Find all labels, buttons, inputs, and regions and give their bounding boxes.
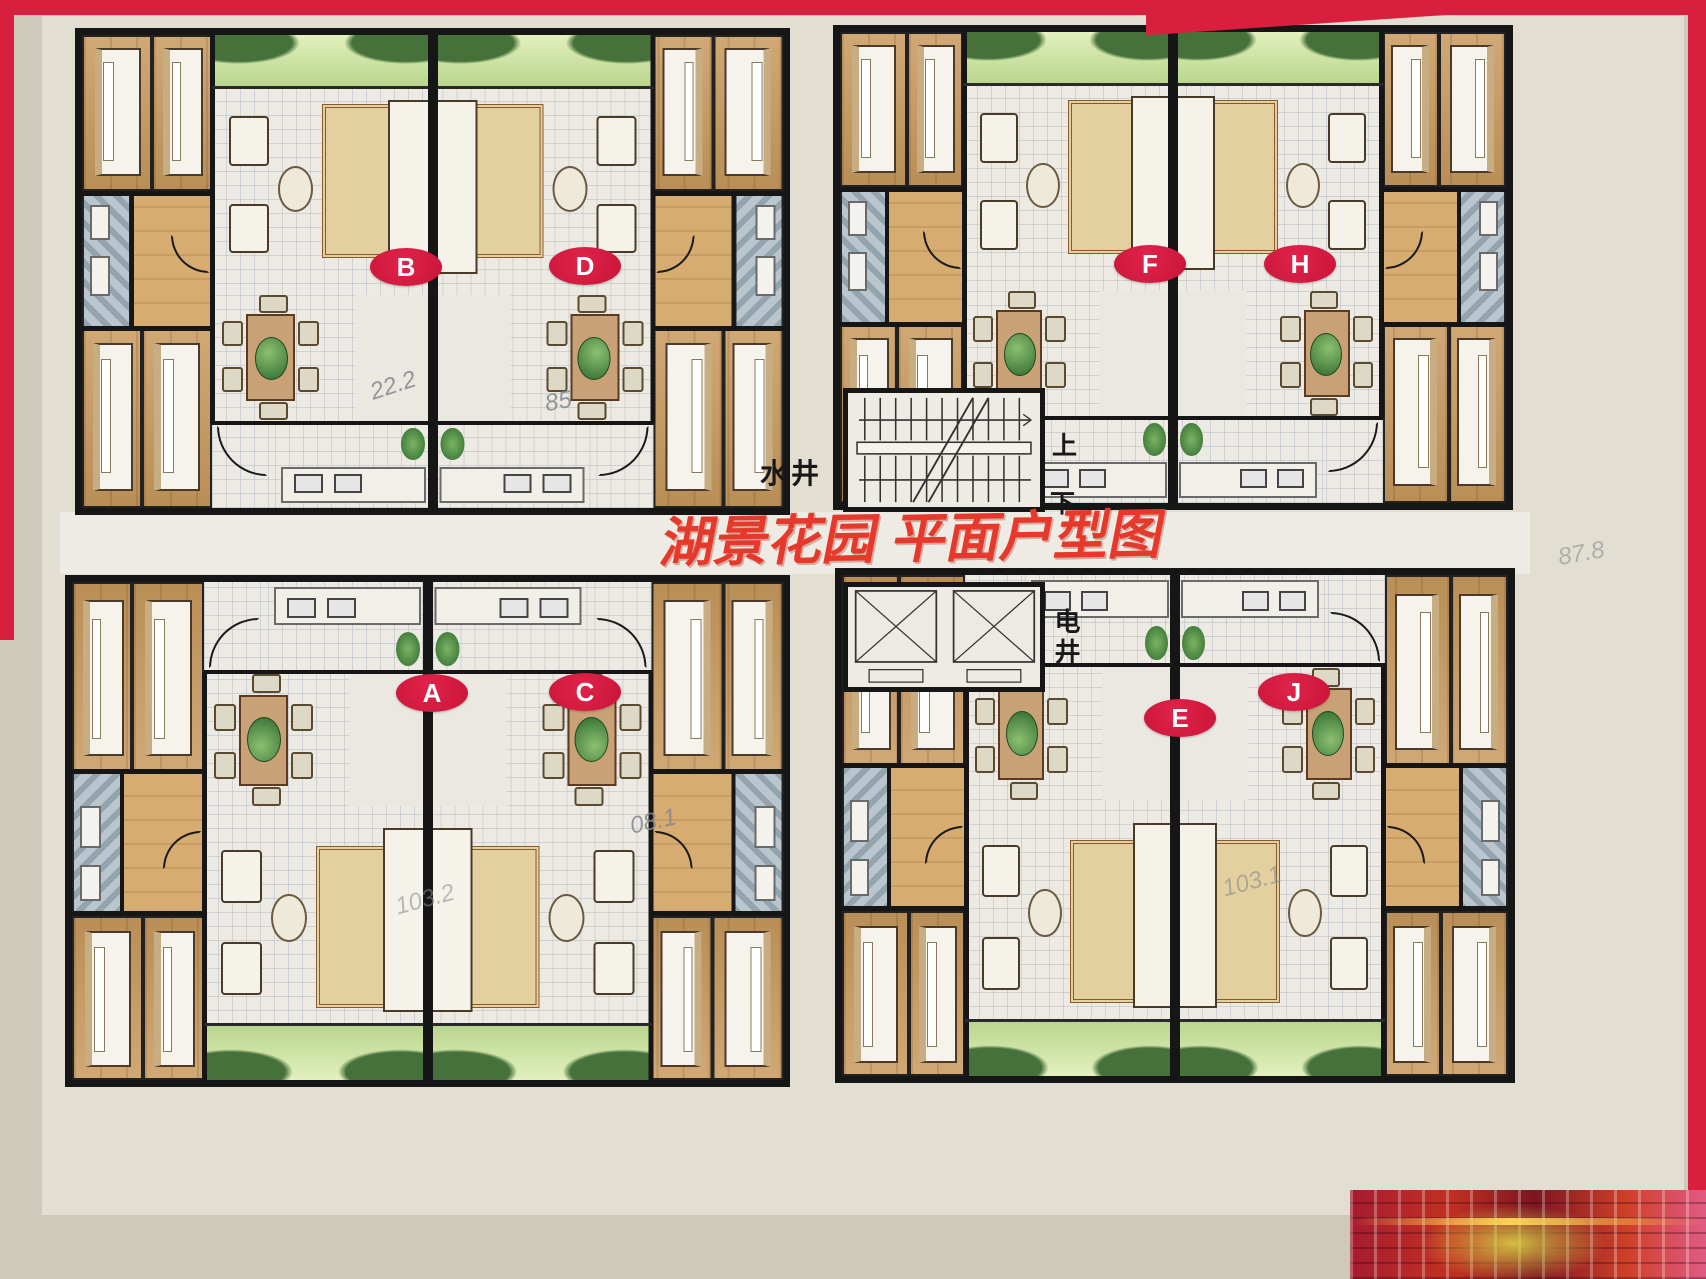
interior-wall xyxy=(428,670,652,674)
kitchen xyxy=(1023,418,1173,503)
interior-wall xyxy=(1175,663,1385,667)
chair-icon xyxy=(1353,362,1373,387)
bed-icon xyxy=(154,343,200,491)
armchair-icon xyxy=(229,116,269,166)
armchair-icon xyxy=(596,204,636,254)
hallway xyxy=(1383,187,1460,324)
armchair-icon xyxy=(1330,845,1368,898)
interior-wall xyxy=(212,421,433,425)
entry xyxy=(204,582,268,672)
sink-icon xyxy=(499,598,528,618)
armchair-icon xyxy=(982,845,1020,898)
interior-wall xyxy=(1379,32,1384,418)
bed-icon xyxy=(1391,45,1429,173)
bed-icon xyxy=(163,48,203,177)
unit-badge-f: F xyxy=(1114,245,1186,283)
light-streak xyxy=(1350,1218,1706,1225)
bath-fixture-icon xyxy=(90,205,110,240)
chair-icon xyxy=(298,321,320,347)
bathroom xyxy=(1461,765,1508,910)
bedroom xyxy=(1383,324,1450,503)
armchair-icon xyxy=(980,200,1018,250)
bed-icon xyxy=(724,48,770,177)
sofa-icon xyxy=(1133,823,1175,1008)
interior-wall xyxy=(653,326,783,331)
door-arc-icon xyxy=(1387,826,1425,864)
sofa-icon xyxy=(383,828,428,1012)
unit-a-floorplan xyxy=(72,582,428,1080)
sofa-icon xyxy=(428,828,473,1012)
balcony-rail xyxy=(212,86,433,89)
plant-icon xyxy=(1183,626,1205,660)
chair-icon xyxy=(1045,362,1065,387)
unit-badge-a: A xyxy=(396,674,468,712)
chair-icon xyxy=(577,402,606,420)
interior-wall xyxy=(648,672,653,1080)
stairs-up-label: 上 xyxy=(1052,426,1077,462)
bedroom xyxy=(1441,911,1508,1076)
interior-wall xyxy=(840,187,963,192)
bedroom xyxy=(713,35,783,191)
plant-icon xyxy=(1145,626,1167,660)
bed-icon xyxy=(917,45,955,173)
plant-icon xyxy=(1143,423,1165,455)
water-shaft-label: 水井 xyxy=(760,452,822,492)
bedroom xyxy=(152,35,212,191)
door-arc-icon xyxy=(209,618,259,668)
bedroom xyxy=(653,328,723,508)
balcony xyxy=(428,1025,652,1080)
bed-icon xyxy=(1393,338,1437,485)
hallway xyxy=(122,771,204,915)
entry xyxy=(590,423,653,508)
stove-icon xyxy=(539,598,568,618)
interior-wall xyxy=(72,911,204,916)
chair-icon xyxy=(1045,316,1065,341)
chair-icon xyxy=(577,295,606,313)
interior-wall xyxy=(210,35,215,423)
interior-wall xyxy=(82,326,212,331)
unit-badge-j: J xyxy=(1258,673,1330,711)
bed-icon xyxy=(663,600,710,756)
bedroom xyxy=(1383,32,1440,187)
poster-border-top-wedge xyxy=(1146,0,1706,38)
bedroom xyxy=(712,916,783,1080)
building-bottom-left xyxy=(65,575,790,1087)
dining-area xyxy=(510,295,654,423)
plant-icon xyxy=(574,717,608,762)
bed-icon xyxy=(662,48,702,177)
chair-icon xyxy=(975,698,995,725)
interior-wall xyxy=(962,32,967,418)
door-arc-icon xyxy=(1385,231,1423,269)
bath-fixture-icon xyxy=(755,205,775,240)
sink-icon xyxy=(1081,591,1108,611)
entry xyxy=(212,423,275,508)
bath-fixture-icon xyxy=(80,865,100,902)
bedroom xyxy=(653,35,713,191)
chair-icon xyxy=(973,362,993,387)
interior-wall xyxy=(72,769,204,774)
bed-icon xyxy=(731,600,772,756)
elevator-core xyxy=(843,582,1045,692)
chair-icon xyxy=(1355,746,1375,773)
entry xyxy=(1323,418,1383,503)
bedroom xyxy=(82,328,142,508)
balcony xyxy=(965,1021,1175,1076)
coffee-table-icon xyxy=(1288,889,1322,937)
chair-icon xyxy=(291,752,313,779)
sofa-icon xyxy=(1173,96,1215,270)
interior-wall xyxy=(651,769,783,774)
plant-icon xyxy=(1006,711,1038,756)
chair-icon xyxy=(1310,398,1337,416)
armchair-icon xyxy=(593,942,633,995)
interior-wall xyxy=(653,191,783,196)
hallway xyxy=(887,187,964,324)
chair-icon xyxy=(622,321,644,347)
bath-fixture-icon xyxy=(754,865,774,902)
counter-icon xyxy=(274,587,421,625)
entry xyxy=(1325,575,1385,665)
chair-icon xyxy=(619,752,641,779)
unit-c-floorplan xyxy=(428,582,784,1080)
armchair-icon xyxy=(1328,113,1366,163)
bath-fixture-icon xyxy=(1481,859,1500,896)
bed-icon xyxy=(854,926,898,1062)
armchair-icon xyxy=(596,116,636,166)
chair-icon xyxy=(222,321,244,347)
interior-wall xyxy=(842,906,965,911)
chair-icon xyxy=(975,746,995,773)
living-room xyxy=(965,800,1175,1020)
plant-icon xyxy=(1312,711,1344,756)
bed-icon xyxy=(145,600,192,756)
bedroom xyxy=(651,916,711,1080)
balcony-rail xyxy=(204,1023,428,1026)
bath-fixture-icon xyxy=(850,859,869,896)
bedroom xyxy=(840,32,907,187)
unit-badge-h: H xyxy=(1264,245,1336,283)
living-room xyxy=(204,806,428,1025)
poster-title: 湖景花园 平面户型图 xyxy=(590,501,1235,578)
interior-wall xyxy=(651,911,783,916)
unit-floorplan xyxy=(72,582,428,1080)
door-arc-icon xyxy=(1330,612,1380,662)
sofa-icon xyxy=(433,100,477,275)
dining-area xyxy=(204,672,350,806)
interior-wall xyxy=(82,191,212,196)
bed-icon xyxy=(85,931,132,1066)
chair-icon xyxy=(973,316,993,341)
living-room xyxy=(1175,800,1385,1020)
balcony xyxy=(1175,1021,1385,1076)
interior-wall xyxy=(1383,187,1506,192)
hallway xyxy=(653,191,734,328)
interior-wall xyxy=(202,672,207,1080)
door-arc-icon xyxy=(163,831,201,869)
balcony-rail xyxy=(428,1023,652,1026)
bath-fixture-icon xyxy=(90,256,110,296)
stove-icon xyxy=(287,598,316,618)
bathroom xyxy=(840,187,887,324)
cityscape-photo xyxy=(1350,1190,1706,1279)
sofa-icon xyxy=(1175,823,1217,1008)
interior-wall xyxy=(887,765,891,910)
door-arc-icon xyxy=(598,426,648,476)
coffee-table-icon xyxy=(278,166,313,212)
plant-icon xyxy=(577,337,611,380)
door-arc-icon xyxy=(596,618,646,668)
door-arc-icon xyxy=(217,426,267,476)
bathroom xyxy=(1459,187,1506,324)
bed-icon xyxy=(154,931,195,1066)
coffee-table-icon xyxy=(1286,163,1320,209)
chair-icon xyxy=(622,367,644,393)
unit-badge-b: B xyxy=(370,248,442,286)
bath-fixture-icon xyxy=(1481,800,1500,842)
poster-border-right xyxy=(1688,0,1706,1279)
armchair-icon xyxy=(982,937,1020,990)
kitchen xyxy=(275,423,433,508)
bed-icon xyxy=(1459,594,1497,751)
bed-icon xyxy=(665,343,711,491)
stairs-icon xyxy=(848,393,1040,507)
plant-icon xyxy=(396,632,420,666)
interior-wall xyxy=(1383,322,1506,327)
unit-badge-e: E xyxy=(1144,699,1216,737)
chair-icon xyxy=(1312,782,1339,801)
bedroom xyxy=(909,911,966,1076)
bed-icon xyxy=(919,926,957,1062)
bed-icon xyxy=(93,343,133,491)
chair-icon xyxy=(291,704,313,731)
kitchen xyxy=(268,582,428,672)
entry xyxy=(587,582,651,672)
chair-icon xyxy=(1280,362,1300,387)
interior-wall xyxy=(1457,187,1461,324)
bedroom xyxy=(907,32,964,187)
chair-icon xyxy=(214,752,236,779)
bathroom xyxy=(733,771,783,915)
bedroom xyxy=(142,328,212,508)
bedroom xyxy=(82,35,152,191)
bedroom xyxy=(1439,32,1506,187)
bed-icon xyxy=(852,45,896,173)
stove-icon xyxy=(1279,591,1306,611)
sink-icon xyxy=(327,598,356,618)
chair-icon xyxy=(1353,316,1373,341)
armchair-icon xyxy=(980,113,1018,163)
coffee-table-icon xyxy=(271,894,307,942)
chair-icon xyxy=(1010,782,1037,801)
coffee-table-icon xyxy=(552,166,587,212)
unit-floorplan xyxy=(428,582,784,1080)
kitchen xyxy=(428,582,588,672)
chair-icon xyxy=(1310,291,1337,309)
balcony xyxy=(204,1025,428,1080)
armchair-icon xyxy=(1328,200,1366,250)
interior-wall xyxy=(650,35,655,423)
bedroom xyxy=(1385,911,1442,1076)
balcony xyxy=(433,35,654,87)
interior-wall xyxy=(1385,763,1508,768)
electric-shaft-label: 电井 xyxy=(1048,608,1085,668)
interior-wall xyxy=(842,763,965,768)
sink-icon xyxy=(1079,469,1106,487)
bedroom xyxy=(132,582,203,771)
chair-icon xyxy=(542,704,564,731)
chair-icon xyxy=(1008,291,1035,309)
bathroom xyxy=(734,191,783,328)
bed-icon xyxy=(1452,926,1496,1062)
chair-icon xyxy=(298,367,320,393)
kitchen xyxy=(1173,418,1323,503)
unit-floorplan xyxy=(1175,575,1508,1076)
interior-wall xyxy=(1173,416,1383,420)
plant-icon xyxy=(247,717,281,762)
kitchen xyxy=(1175,575,1325,665)
bedroom xyxy=(1385,575,1452,765)
stair-core xyxy=(843,388,1045,512)
stove-icon xyxy=(542,474,570,492)
door-arc-icon xyxy=(656,235,694,273)
balcony-rail xyxy=(963,83,1173,86)
armchair-icon xyxy=(593,850,633,903)
bed-icon xyxy=(83,600,124,756)
bed-icon xyxy=(1395,594,1439,751)
stove-icon xyxy=(1277,469,1304,487)
party-wall xyxy=(1170,575,1180,1076)
sink-icon xyxy=(1242,591,1269,611)
dining-area xyxy=(212,295,356,423)
bedroom xyxy=(842,911,909,1076)
coffee-table-icon xyxy=(1028,889,1062,937)
chair-icon xyxy=(619,704,641,731)
balcony xyxy=(1173,32,1383,84)
interior-wall xyxy=(433,421,654,425)
door-arc-icon xyxy=(923,231,961,269)
bed-icon xyxy=(724,931,771,1066)
armchair-icon xyxy=(229,204,269,254)
chair-icon xyxy=(1282,746,1302,773)
bed-icon xyxy=(1450,45,1494,173)
interior-wall xyxy=(120,771,124,915)
chair-icon xyxy=(259,295,288,313)
chair-icon xyxy=(1280,316,1300,341)
plant-icon xyxy=(436,632,460,666)
bathroom xyxy=(72,771,122,915)
bed-icon xyxy=(1457,338,1495,485)
dining-area xyxy=(1246,291,1383,418)
unit-badge-d: D xyxy=(549,247,621,285)
bathroom xyxy=(82,191,131,328)
plant-icon xyxy=(440,428,464,460)
interior-wall xyxy=(885,187,889,324)
chair-icon xyxy=(222,367,244,393)
chair-icon xyxy=(574,787,603,806)
chair-icon xyxy=(542,752,564,779)
interior-wall xyxy=(731,771,735,915)
counter-icon xyxy=(1181,580,1319,618)
bath-fixture-icon xyxy=(755,256,775,296)
armchair-icon xyxy=(221,850,261,903)
door-arc-icon xyxy=(654,831,692,869)
bath-fixture-icon xyxy=(850,800,869,842)
counter-icon xyxy=(439,467,584,503)
interior-wall xyxy=(840,322,963,327)
chair-icon xyxy=(1047,746,1067,773)
bath-fixture-icon xyxy=(80,806,100,848)
balcony-rail xyxy=(1175,1019,1385,1022)
plant-icon xyxy=(1310,333,1342,376)
interior-wall xyxy=(1385,906,1508,911)
door-arc-icon xyxy=(925,826,963,864)
kitchen xyxy=(433,423,591,508)
bedroom xyxy=(72,582,132,771)
unit-floorplan xyxy=(1173,32,1506,503)
bedroom xyxy=(723,582,783,771)
unit-j-floorplan xyxy=(1175,575,1508,1076)
balcony xyxy=(963,32,1173,84)
bathroom xyxy=(842,765,889,910)
interior-wall xyxy=(204,670,428,674)
elevator-icon xyxy=(848,587,1040,687)
sink-icon xyxy=(334,474,362,492)
sink-icon xyxy=(503,474,531,492)
bath-fixture-icon xyxy=(848,252,867,292)
interior-wall xyxy=(1459,765,1463,910)
plant-icon xyxy=(1181,423,1203,455)
bath-fixture-icon xyxy=(1479,252,1498,292)
party-wall xyxy=(423,582,433,1080)
chair-icon xyxy=(546,321,568,347)
door-arc-icon xyxy=(1328,422,1378,472)
balcony-rail xyxy=(433,86,654,89)
balcony-rail xyxy=(1173,83,1383,86)
plant-icon xyxy=(1004,333,1036,376)
hallway xyxy=(889,765,966,910)
counter-icon xyxy=(281,467,426,503)
hallway xyxy=(651,771,733,915)
armchair-icon xyxy=(1330,937,1368,990)
hallway xyxy=(131,191,212,328)
bedroom xyxy=(1449,324,1506,503)
bedroom xyxy=(72,916,143,1080)
bed-icon xyxy=(660,931,701,1066)
poster-border-left xyxy=(0,0,14,640)
plant-icon xyxy=(401,428,425,460)
interior-wall xyxy=(1381,665,1386,1076)
balcony-rail xyxy=(965,1019,1175,1022)
counter-icon xyxy=(434,587,581,625)
bath-fixture-icon xyxy=(754,806,774,848)
interior-wall xyxy=(964,665,969,1076)
living-room xyxy=(428,806,652,1025)
bed-icon xyxy=(95,48,141,177)
chair-icon xyxy=(1047,698,1067,725)
chair-icon xyxy=(1355,698,1375,725)
armchair-icon xyxy=(221,942,261,995)
coffee-table-icon xyxy=(1026,163,1060,209)
counter-icon xyxy=(1179,462,1317,498)
hallway xyxy=(1385,765,1462,910)
chair-icon xyxy=(259,402,288,420)
bed-icon xyxy=(1393,926,1431,1062)
unit-h-floorplan xyxy=(1173,32,1506,503)
bedroom xyxy=(143,916,203,1080)
handwritten-note: 85 xyxy=(543,386,574,418)
